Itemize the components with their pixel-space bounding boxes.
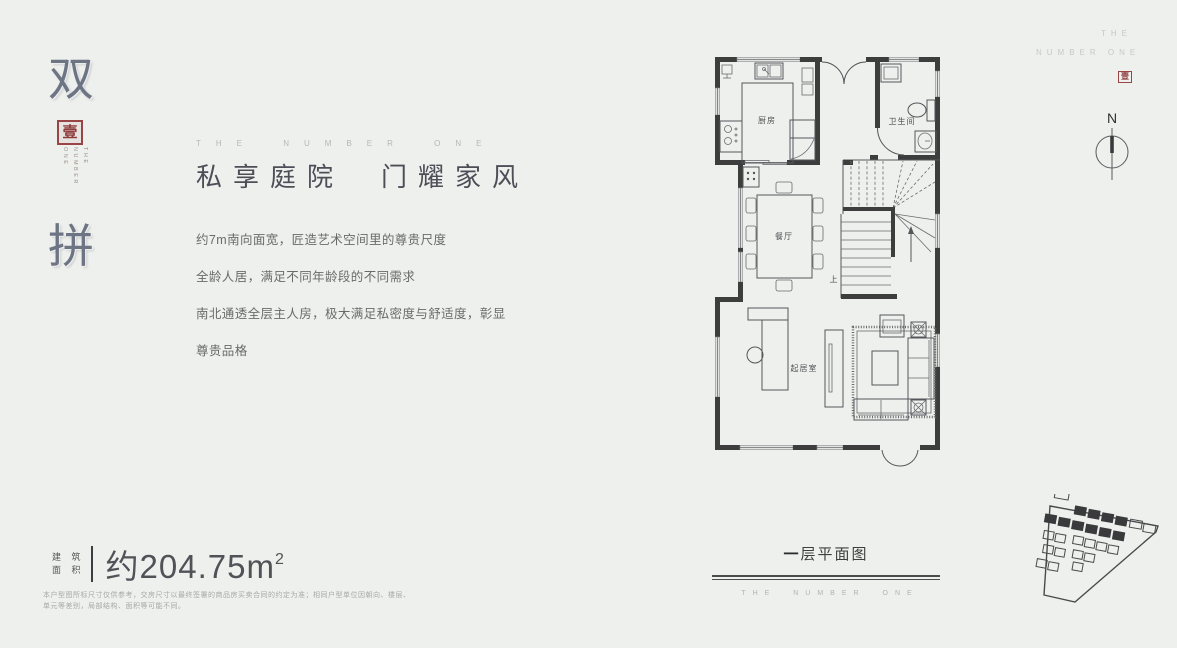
compass-north-label: N	[1107, 110, 1117, 126]
area-divider	[91, 546, 93, 582]
brand-seal-small: 壹	[1118, 71, 1132, 83]
hero-character-bottom: 拼	[48, 223, 94, 269]
area-label-line2: 面 积	[52, 564, 85, 577]
vertical-brand-text: THE NUMBER ONE	[60, 147, 90, 209]
body-line: 尊贵品格	[196, 345, 536, 358]
poster-page: 双 壹 THE NUMBER ONE 拼 THE NUMBER ONE 私享庭院…	[0, 0, 1177, 648]
top-right-brand-line2: NUMBER ONE	[1036, 43, 1132, 62]
plan-caption: 一层平面图	[712, 543, 940, 564]
headline: 私享庭院 门耀家风	[196, 157, 536, 194]
top-right-brand: THE NUMBER ONE	[1036, 24, 1132, 62]
seal-character: 壹	[62, 125, 77, 140]
disclaimer: 本户型图所标尺寸仅供参考，交房尺寸以最终签署的商品房买卖合同的约定为准；相同户型…	[43, 590, 411, 612]
plan-footer-brand: THE NUMBER ONE	[712, 590, 948, 597]
body-line: 全龄人居，满足不同年龄段的不同需求	[196, 271, 536, 284]
floor-plan-drawing: 厨房 卫生间 餐厅 上 起居室	[703, 48, 948, 468]
hero-character-top: 双	[48, 56, 94, 102]
disclaimer-line1: 本户型图所标尺寸仅供参考，交房尺寸以最终签署的商品房买卖合同的约定为准；相同户型…	[43, 590, 411, 601]
built-area-row: 建 筑 面 积 约204.75m2	[52, 540, 285, 588]
vertical-brand-line1: THE	[80, 147, 90, 209]
eyebrow-brand-text: THE NUMBER ONE	[196, 139, 536, 148]
area-label-line1: 建 筑	[52, 551, 85, 564]
body-line: 约7m南向面宽，匠造艺术空间里的尊贵尺度	[196, 234, 536, 247]
area-label: 建 筑 面 积	[52, 551, 85, 577]
body-copy: 约7m南向面宽，匠造艺术空间里的尊贵尺度 全龄人居，满足不同年龄段的不同需求 南…	[196, 234, 536, 358]
caption-divider	[712, 575, 940, 580]
body-line: 南北通透全层主人房，极大满足私密度与舒适度，彰显	[196, 308, 536, 321]
room-label-dining: 餐厅	[775, 232, 793, 241]
area-value-number: 约204.75m	[106, 548, 275, 585]
area-value-superscript: 2	[275, 551, 285, 568]
room-label-bathroom: 卫生间	[889, 116, 916, 126]
site-plan-map	[1028, 494, 1166, 614]
vertical-brand-line2: NUMBER ONE	[60, 147, 80, 209]
area-value: 约204.75m2	[106, 540, 285, 588]
room-label-living: 起居室	[791, 363, 818, 373]
north-compass-icon: N	[1090, 98, 1135, 186]
main-copy-block: THE NUMBER ONE 私享庭院 门耀家风 约7m南向面宽，匠造艺术空间里…	[196, 139, 536, 382]
top-right-brand-line1: THE	[1036, 24, 1132, 43]
site-plan-buildings	[1036, 494, 1159, 587]
disclaimer-line2: 单元等差别，局部结构、面积等可能不同。	[43, 601, 411, 612]
plan-caption-number: 一	[783, 546, 800, 563]
brand-seal: 壹	[57, 120, 83, 145]
stairs-up-label: 上	[830, 275, 839, 284]
top-right-seal-row: 壹	[1036, 66, 1132, 84]
plan-caption-text: 层平面图	[801, 546, 869, 563]
room-label-kitchen: 厨房	[758, 115, 776, 125]
